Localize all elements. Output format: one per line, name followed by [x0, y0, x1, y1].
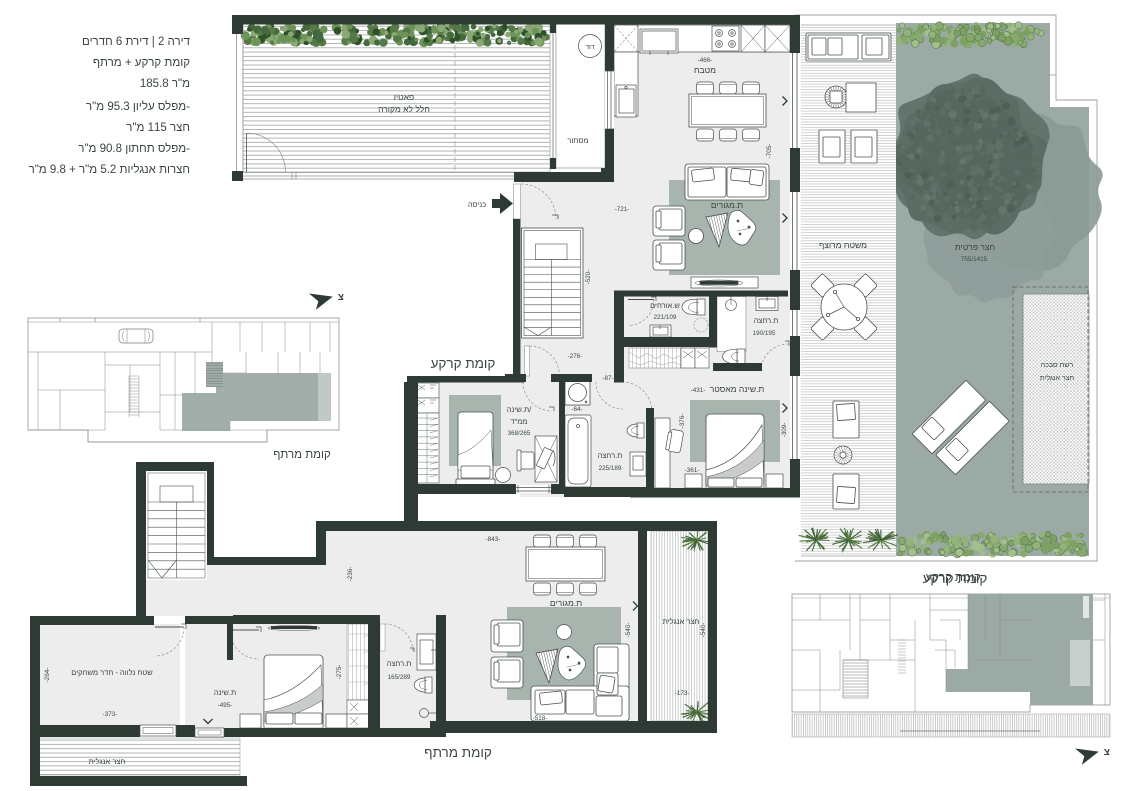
svg-text:-843-: -843-	[486, 536, 501, 543]
svg-text:190/195: 190/195	[753, 330, 776, 337]
svg-text:מסתור: מסתור	[567, 136, 588, 145]
svg-text:קומת קרקע: קומת קרקע	[925, 572, 980, 584]
svg-text:‫-מפלס תחתון 90.8 מ"ר‬: ‫-מפלס תחתון 90.8 מ"ר‬	[78, 142, 190, 155]
svg-text:-376-: -376-	[679, 414, 686, 429]
svg-text:‫דירה 2 | דירת 6 חדרים‬: ‫דירה 2 | דירת 6 חדרים‬	[82, 36, 191, 48]
svg-text:-540-: -540-	[700, 623, 707, 638]
svg-text:-540-: -540-	[625, 623, 632, 638]
svg-text:-518-: -518-	[533, 715, 548, 722]
svg-text:‫קומת קרקע + מרתף‬: ‫קומת קרקע + מרתף‬	[93, 57, 190, 69]
svg-text:-64-: -64-	[571, 406, 582, 413]
svg-text:-275-: -275-	[336, 665, 343, 680]
svg-text:-705-: -705-	[766, 144, 773, 159]
svg-text:ת.מגורים: ת.מגורים	[711, 200, 743, 210]
svg-text:‫חצרות אנגליות 5.2 מ"ר + 9.8 מ: ‫חצרות אנגליות 5.2 מ"ר + 9.8 מ"ר‬	[29, 163, 190, 176]
svg-text:-520-: -520-	[585, 270, 592, 285]
svg-text:221/109: 221/109	[654, 314, 677, 321]
svg-text:-173-: -173-	[675, 690, 690, 697]
svg-text:-721-: -721-	[615, 206, 630, 213]
svg-text:ת.מגורים: ת.מגורים	[550, 598, 582, 608]
svg-text:קומת מרתף: קומת מרתף	[273, 449, 331, 461]
svg-text:כניסה: כניסה	[468, 200, 486, 209]
svg-text:-236-: -236-	[347, 567, 354, 582]
svg-text:-361-: -361-	[685, 467, 700, 474]
svg-text:-495-: -495-	[218, 702, 233, 709]
svg-text:‫מ"ר 185.8‬: ‫מ"ר 185.8‬	[140, 78, 190, 90]
svg-text:-373-: -373-	[103, 711, 118, 718]
svg-text:קומת מרתף: קומת מרתף	[424, 745, 492, 760]
svg-text:חצר פרטית: חצר פרטית	[955, 242, 995, 252]
svg-text:פאטיו: פאטיו	[394, 92, 415, 102]
svg-text:-466-: -466-	[698, 57, 713, 64]
svg-text:-264-: -264-	[44, 668, 51, 683]
svg-text:שטח נלווה - חדר משחקים: שטח נלווה - חדר משחקים	[71, 668, 153, 677]
svg-text:חצר אנגלית: חצר אנגלית	[89, 757, 126, 766]
svg-text:‫חצר 115 מ"ר‬: ‫חצר 115 מ"ר‬	[126, 122, 190, 134]
svg-text:חצר אנגלית: חצר אנגלית	[1040, 374, 1075, 382]
svg-text:מטבח: מטבח	[694, 65, 716, 75]
svg-text:-276-: -276-	[568, 353, 583, 360]
svg-text:755/1415: 755/1415	[961, 256, 988, 263]
svg-text:-309-: -309-	[781, 423, 788, 438]
svg-text:ת.שינה: ת.שינה	[214, 688, 236, 697]
svg-text:225/189: 225/189	[599, 465, 622, 472]
svg-text:ת.רחצה: ת.רחצה	[598, 451, 623, 460]
svg-text:-431-: -431-	[691, 387, 706, 394]
svg-text:ת.רחצה: ת.רחצה	[754, 316, 779, 325]
svg-text:רשת סבכה: רשת סבכה	[1041, 362, 1074, 369]
svg-text:165/289: 165/289	[388, 674, 411, 681]
svg-text:ת.שינה מאסטר: ת.שינה מאסטר	[710, 384, 765, 394]
svg-text:חצר אנגלית: חצר אנגלית	[663, 617, 700, 626]
svg-text:משטח מרוצף: משטח מרוצף	[819, 240, 867, 250]
svg-text:-87-: -87-	[602, 375, 613, 382]
svg-text:חלל לא מקורה: חלל לא מקורה	[378, 104, 430, 114]
svg-text:דוד: דוד	[586, 44, 595, 51]
svg-text:ת.רחצה: ת.רחצה	[387, 659, 412, 668]
svg-text:ש.אורחים: ש.אורחים	[650, 301, 680, 310]
svg-text:צ: צ	[338, 292, 344, 303]
svg-text:צ: צ	[1104, 747, 1110, 758]
svg-text:‫-מפלס עליון 95.3 מ"ר‬: ‫-מפלס עליון 95.3 מ"ר‬	[86, 100, 190, 113]
svg-text:קומת קרקע: קומת קרקע	[431, 356, 496, 371]
